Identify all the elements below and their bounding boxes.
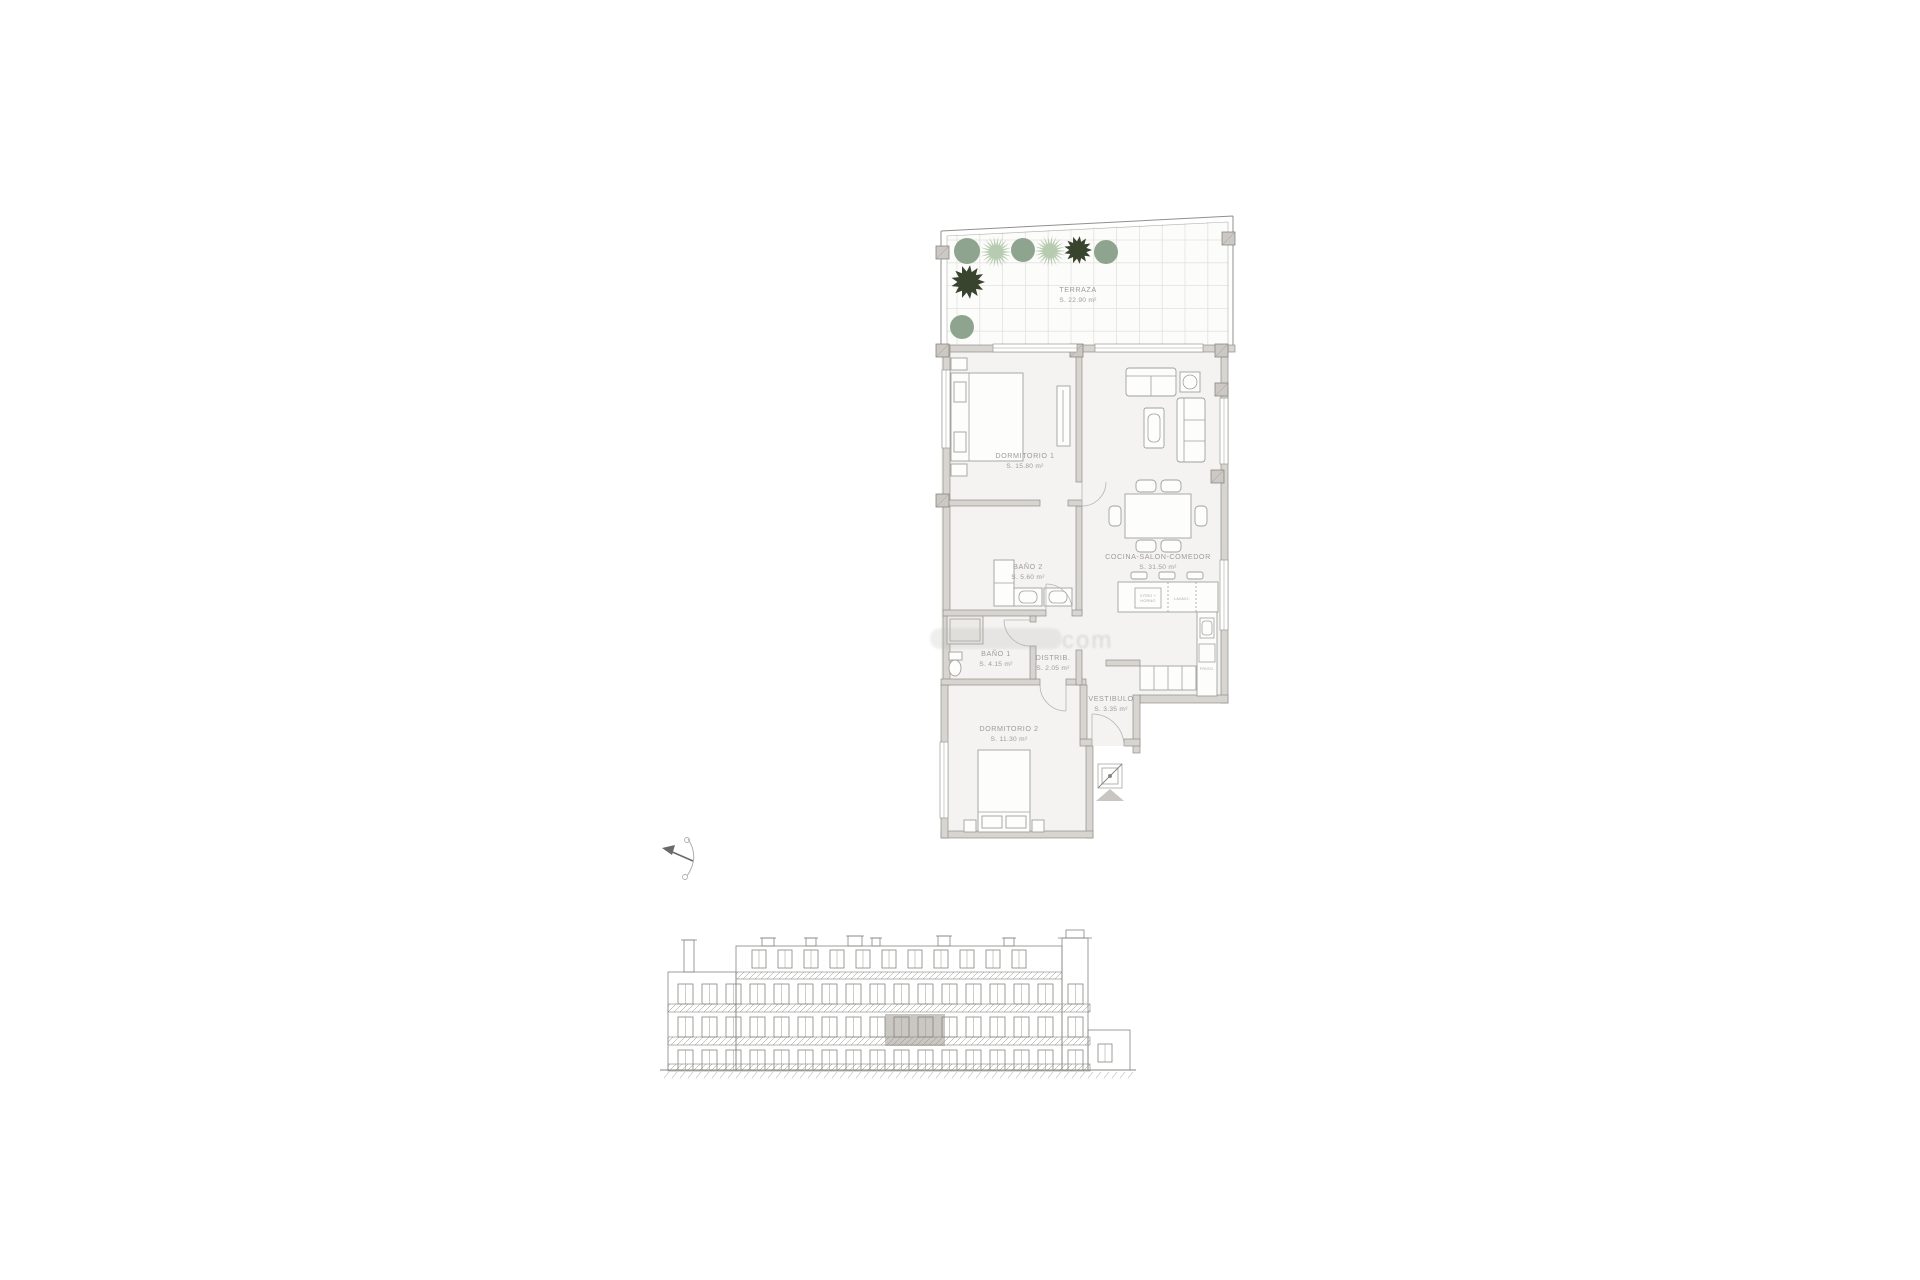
label-bano2: BAÑO 2 [1013,562,1043,571]
wardrobe-dormitorio1 [1057,386,1070,446]
label-vestibulo: VESTIBULO [1088,694,1133,703]
chair [1109,506,1121,526]
area-dormitorio2: S. 11.30 m² [991,736,1028,743]
label-cocina: COCINA-SALON-COMEDOR [1105,552,1211,561]
dining-table [1125,494,1191,538]
label-dormitorio1: DORMITORIO 1 [995,451,1054,460]
plant-bush [950,315,974,339]
watermark-text: com [1062,627,1113,654]
nightstand [1032,820,1044,832]
chair [1161,540,1181,552]
label-hob1: VITRO + [1140,594,1157,598]
stool [1131,572,1147,579]
nightstand [964,820,976,832]
label-distrib: DISTRIB. [1036,653,1071,662]
north-arrow-icon [662,838,694,880]
floor-plan: TERRAZA S. 22.90 m² DORMITORIO 1 S. 15.8… [930,214,1235,838]
plant-bush [954,238,980,264]
stool [1187,572,1203,579]
area-vestibulo: S. 3.35 m² [1094,706,1128,713]
entrance-arrow-icon [1096,789,1124,801]
label-dishwasher: LAVAVJ. [1174,597,1190,601]
chair [1161,480,1181,492]
toilet [949,652,962,660]
nightstand [951,464,967,476]
nightstand [951,358,967,370]
area-cocina: S. 31.50 m² [1139,564,1177,571]
label-hob2: HORNO [1140,599,1155,603]
sofa-3seat [1177,398,1205,462]
label-fridge: FRIGO. [1200,667,1214,671]
label-dormitorio2: DORMITORIO 2 [979,724,1038,733]
label-bano1: BAÑO 1 [981,649,1011,658]
stool [1159,572,1175,579]
plant-bush [1011,238,1035,262]
label-terraza: TERRAZA [1059,285,1096,294]
entrance-symbols [1096,764,1124,801]
area-bano1: S. 4.15 m² [979,661,1013,668]
electrical-panel-icon [1098,764,1122,788]
area-distrib: S. 2.05 m² [1036,665,1070,672]
building-elevation [660,930,1136,1078]
area-terraza: S. 22.90 m² [1059,297,1097,304]
area-dormitorio1: S. 15.80 m² [1006,463,1044,470]
chair [1195,506,1207,526]
plant-bush [1094,240,1118,264]
area-bano2: S. 5.60 m² [1011,574,1045,581]
chair [1136,480,1156,492]
chair [1136,540,1156,552]
architectural-plan-canvas: TERRAZA S. 22.90 m² DORMITORIO 1 S. 15.8… [0,0,1920,1280]
